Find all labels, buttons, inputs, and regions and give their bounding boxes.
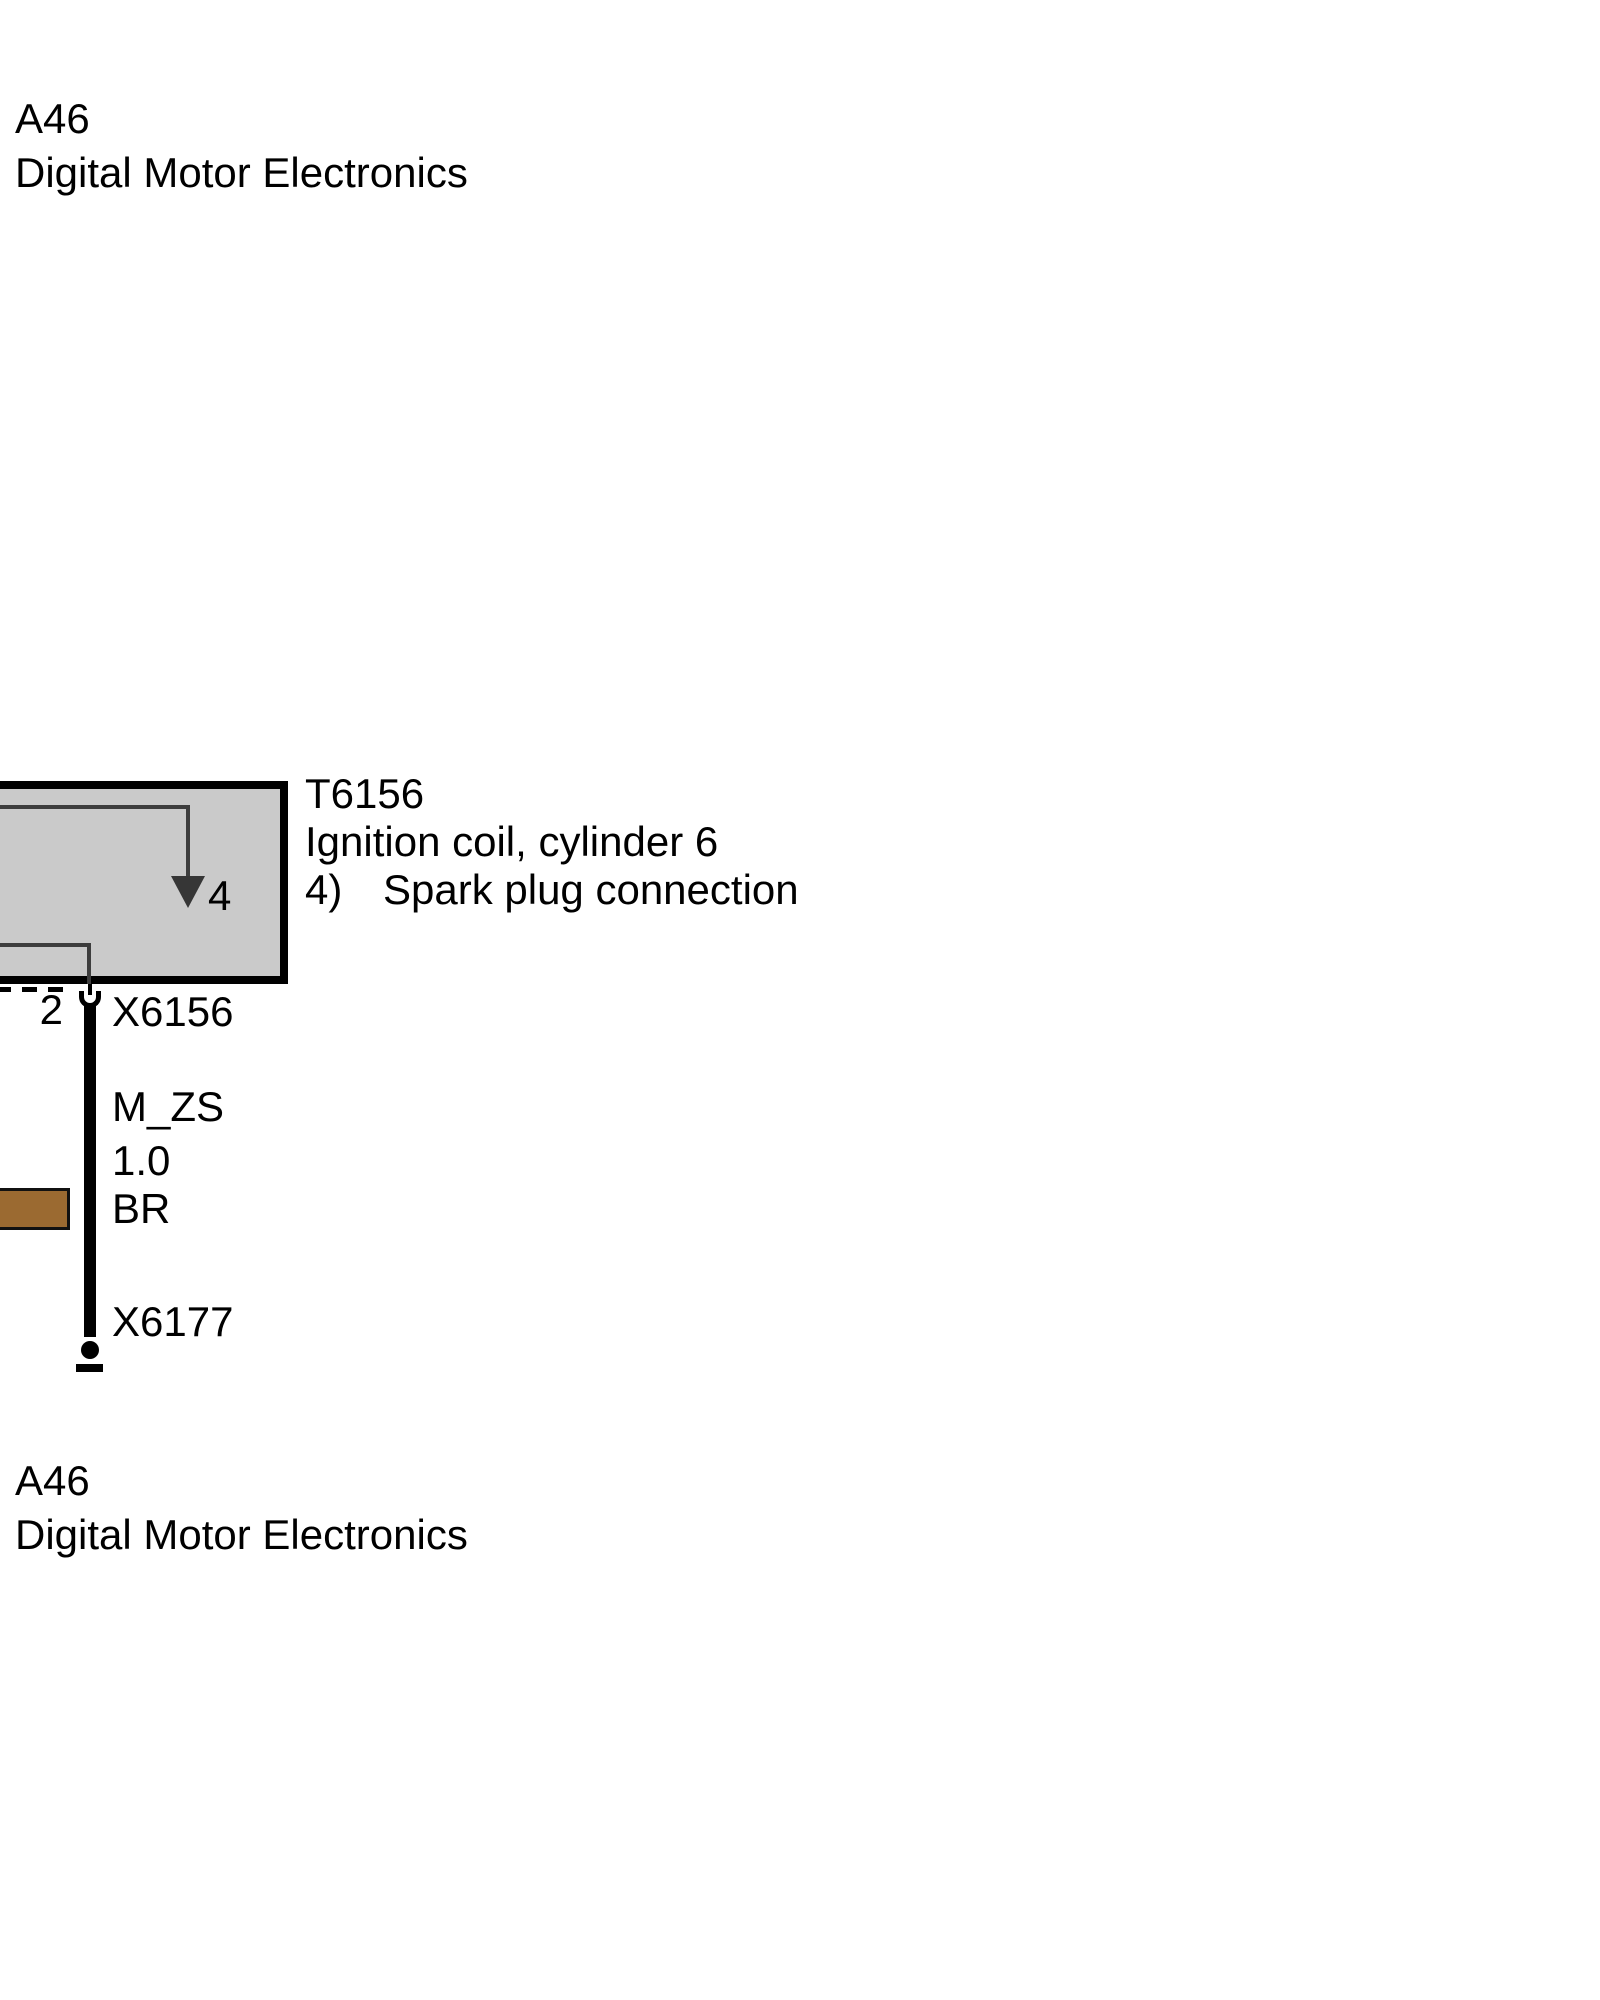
footnote-marker: 4)	[305, 866, 383, 914]
component-label-top: A46 Digital Motor Electronics	[15, 92, 468, 200]
wire-gauge-label: 1.0	[112, 1134, 170, 1188]
component-id: A46	[15, 92, 468, 146]
component-id: A46	[15, 1454, 468, 1508]
component-name: Digital Motor Electronics	[15, 1508, 468, 1562]
ground-bar-icon	[76, 1364, 103, 1372]
wiring-diagram-canvas: A46 Digital Motor Electronics 4 T6156 Ig…	[0, 0, 1600, 2000]
spark-plug-pin-label: 4	[208, 869, 231, 923]
coil-id: T6156	[305, 770, 799, 818]
component-name: Digital Motor Electronics	[15, 146, 468, 200]
wire-signal-label: M_ZS	[112, 1080, 224, 1134]
coil-footnote: 4)Spark plug connection	[305, 866, 799, 914]
connector-x6177-label: X6177	[112, 1295, 233, 1349]
connector-pin-number: 2	[36, 983, 63, 1037]
coil-internal-trace-horizontal	[0, 805, 190, 809]
coil-name: Ignition coil, cylinder 6	[305, 818, 799, 866]
coil-internal-trace-vertical	[186, 805, 190, 878]
component-label-bottom: A46 Digital Motor Electronics	[15, 1454, 468, 1562]
coil-ground-trace-vertical	[87, 943, 91, 984]
wire-color-code-label: BR	[112, 1182, 170, 1236]
coil-description: T6156 Ignition coil, cylinder 6 4)Spark …	[305, 770, 799, 914]
connector-x6156-label: X6156	[112, 985, 233, 1039]
arrow-down-icon	[171, 876, 205, 908]
coil-ground-trace-horizontal	[0, 943, 91, 947]
ground-splice-dot-icon	[81, 1341, 99, 1359]
ground-wire	[84, 1004, 96, 1337]
wire-color-swatch	[0, 1188, 70, 1230]
footnote-text: Spark plug connection	[383, 866, 799, 913]
ignition-coil-box	[0, 781, 288, 984]
